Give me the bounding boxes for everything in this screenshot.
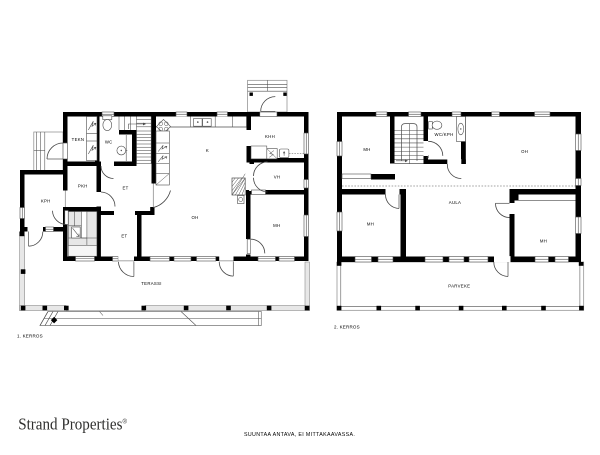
svg-text:KHH: KHH	[265, 134, 275, 139]
svg-text:SUUNTAA ANTAVA, EI MITTAKAAVAS: SUUNTAA ANTAVA, EI MITTAKAAVASSA.	[244, 432, 355, 438]
svg-text:AULA: AULA	[449, 200, 461, 205]
svg-text:TEKN: TEKN	[72, 137, 85, 142]
svg-text:MH: MH	[273, 223, 280, 228]
svg-text:ET: ET	[121, 233, 127, 238]
svg-text:MH: MH	[363, 147, 370, 152]
svg-text:MH: MH	[540, 239, 547, 244]
svg-text:WC/KPH: WC/KPH	[435, 132, 454, 137]
svg-text:OH: OH	[521, 149, 528, 154]
svg-text:K: K	[206, 148, 209, 153]
svg-text:PARVEKE: PARVEKE	[448, 283, 470, 288]
svg-text:WC: WC	[105, 140, 113, 145]
svg-text:ET: ET	[122, 186, 128, 191]
svg-text:MH: MH	[367, 222, 374, 227]
svg-text:2. KERROS: 2. KERROS	[334, 325, 360, 330]
svg-text:Strand Properties®: Strand Properties®	[18, 416, 127, 434]
svg-text:OH: OH	[191, 215, 198, 220]
svg-text:KPH: KPH	[41, 199, 51, 204]
svg-text:VH: VH	[274, 175, 281, 180]
svg-text:TERASSI: TERASSI	[141, 281, 162, 286]
svg-text:PKH: PKH	[78, 184, 88, 189]
svg-text:1. KERROS: 1. KERROS	[17, 334, 43, 339]
